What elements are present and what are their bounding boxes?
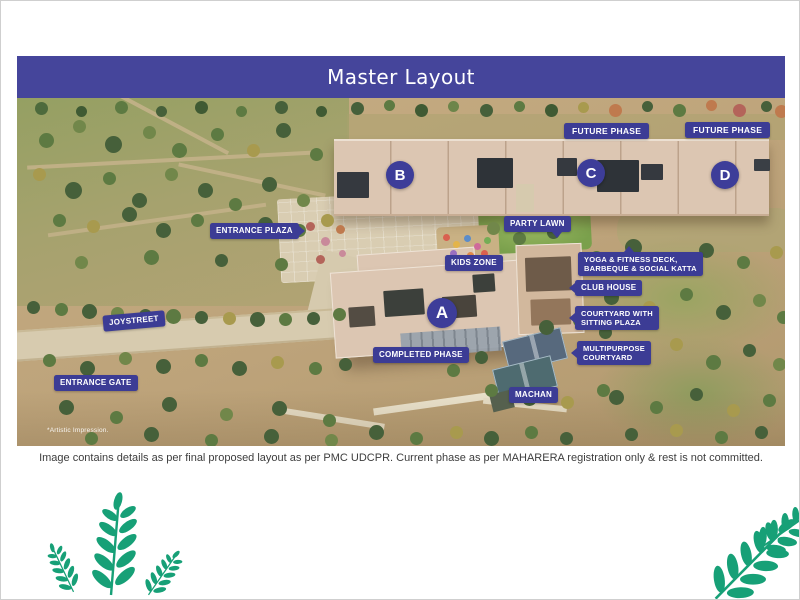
artistic-impression-note: *Artistic Impression. — [47, 427, 109, 434]
leaf-decoration-left — [29, 469, 179, 597]
rooftop-detail — [557, 158, 577, 176]
label-line: SITTING PLAZA — [581, 318, 653, 327]
tree-cluster — [17, 98, 26, 107]
strip-passage — [516, 184, 534, 212]
disclaimer-caption: Image contains details as per final prop… — [1, 452, 800, 464]
rooftop-detail — [337, 172, 369, 198]
label-kids-zone: KIDS ZONE — [445, 255, 503, 271]
building-marker-a: A — [427, 298, 457, 328]
courtyard-cutout — [348, 306, 375, 328]
courtyard-cutout — [472, 273, 495, 292]
label-line: BARBEQUE & SOCIAL KATTA — [584, 264, 697, 273]
flowering-shrubs — [299, 216, 306, 223]
leaf-decoration-right — [703, 457, 800, 600]
label-future-phase-left: FUTURE PHASE — [564, 123, 649, 139]
label-party-lawn: PARTY LAWN — [504, 216, 571, 232]
label-line: COURTYARD — [583, 353, 645, 362]
building-marker-b: B — [386, 161, 414, 189]
building-marker-d: D — [711, 161, 739, 189]
title-bar: Master Layout — [17, 56, 785, 98]
label-yoga-fitness-deck: YOGA & FITNESS DECK, BARBEQUE & SOCIAL K… — [578, 252, 703, 276]
bottom-shade — [17, 390, 785, 446]
label-entrance-plaza: ENTRANCE PLAZA — [210, 223, 299, 239]
courtyard-cutout — [383, 288, 425, 317]
rooftop-detail — [477, 158, 513, 188]
label-club-house: CLUB HOUSE — [575, 280, 642, 296]
master-layout-map: B C D A FUTURE PHASE FUTURE PHASE ENTRAN… — [17, 98, 785, 446]
label-future-phase-right: FUTURE PHASE — [685, 122, 770, 138]
label-line: YOGA & FITNESS DECK, — [584, 255, 697, 264]
label-multipurpose-courtyard: MULTIPURPOSE COURTYARD — [577, 341, 651, 365]
label-line: MULTIPURPOSE — [583, 344, 645, 353]
rooftop-detail — [641, 164, 663, 180]
label-completed-phase: COMPLETED PHASE — [373, 347, 469, 363]
page-title: Master Layout — [327, 65, 475, 89]
page: Master Layout — [0, 0, 800, 600]
kids-zone-play-equipment — [437, 226, 444, 233]
label-entrance-gate: ENTRANCE GATE — [54, 375, 138, 391]
building-marker-c: C — [577, 159, 605, 187]
label-line: COURTYARD WITH — [581, 309, 653, 318]
rooftop-detail — [754, 159, 770, 171]
label-courtyard-sitting-plaza: COURTYARD WITH SITTING PLAZA — [575, 306, 659, 330]
label-machan: MACHAN — [509, 387, 558, 403]
